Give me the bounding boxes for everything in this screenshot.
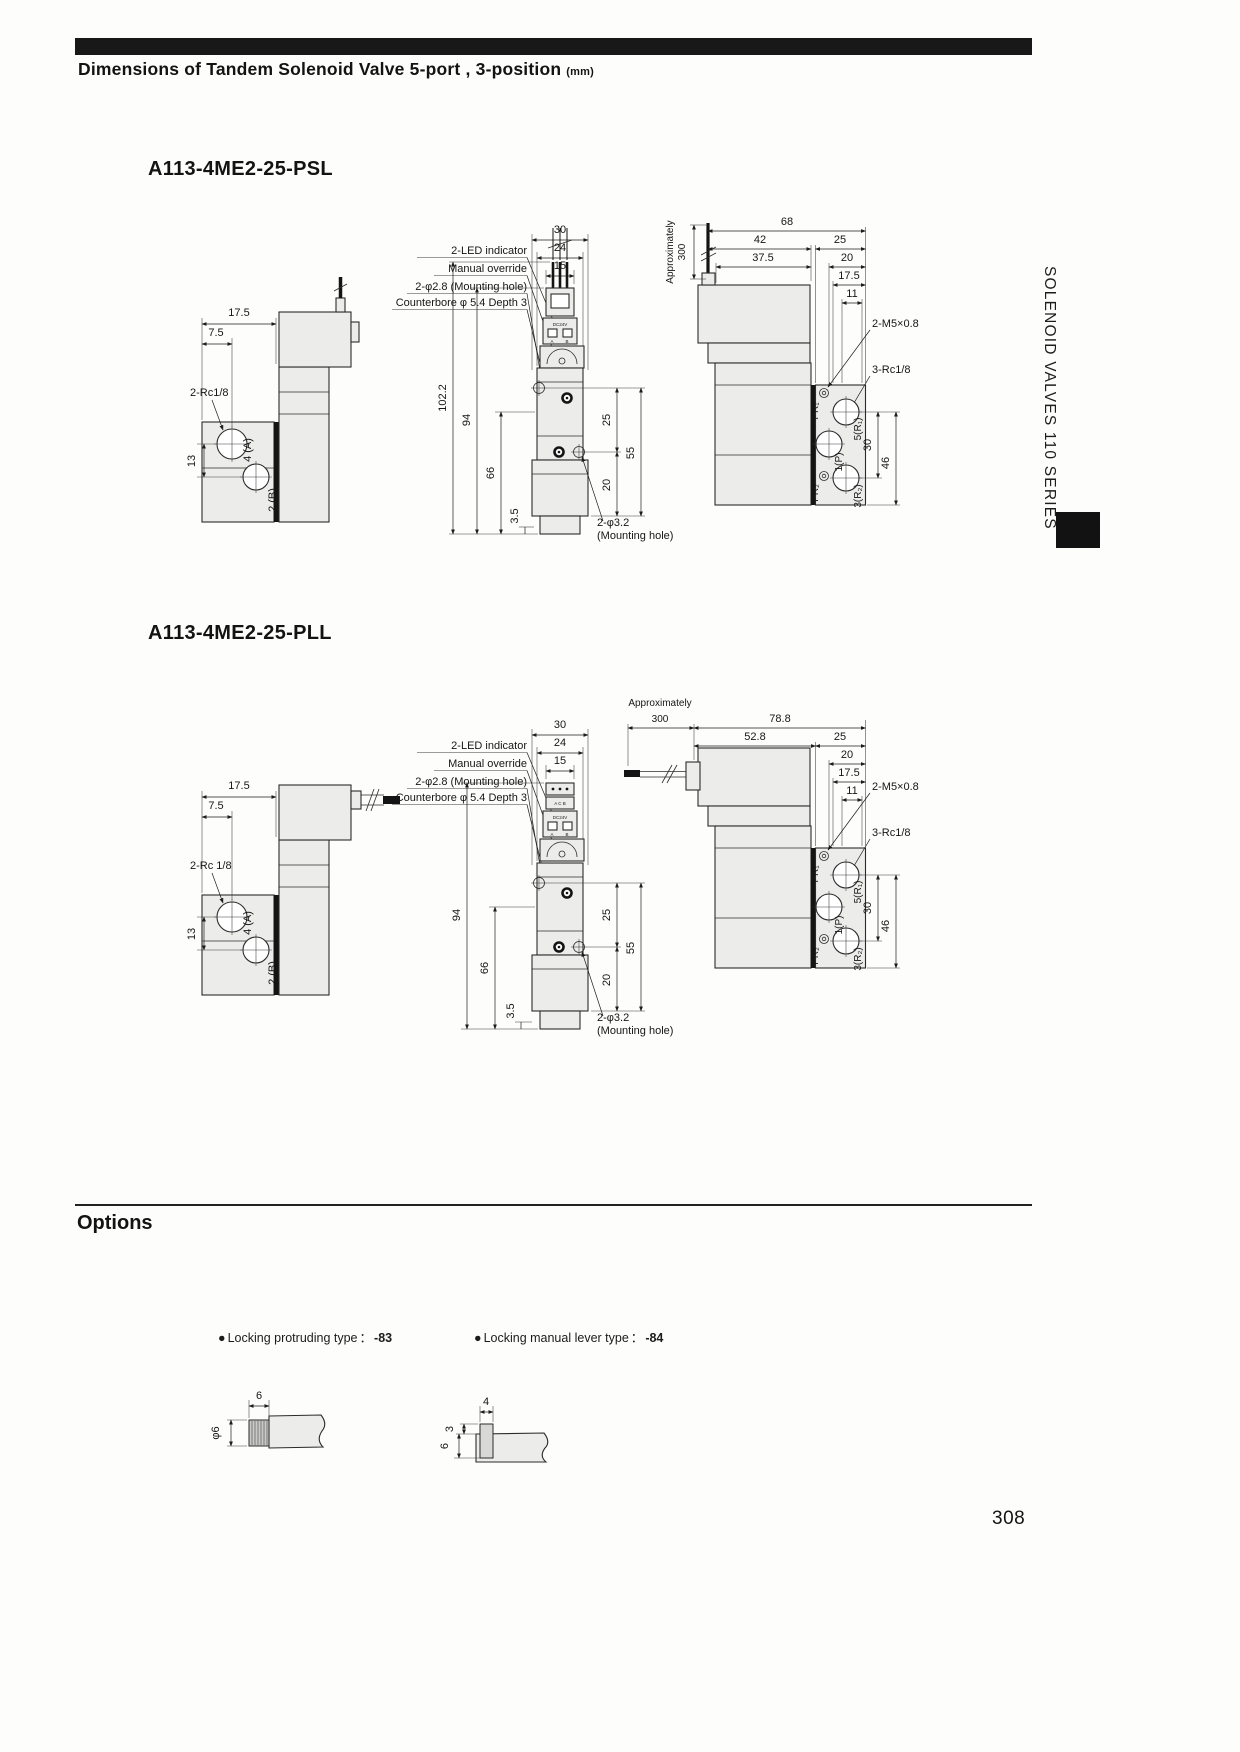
hole-size-label: 2-φ3.2 — [597, 1012, 629, 1024]
dim-17-5: 17.5 — [838, 767, 859, 779]
dim-label: 20 — [601, 479, 613, 491]
dim-approx-300: Approximately 300 — [628, 698, 694, 766]
approx-label: Approximately — [665, 220, 676, 283]
dim-label: 6 — [256, 1390, 262, 1402]
port-5r1-label: 5(R₁) — [853, 418, 864, 441]
dim-label: 17.5 — [228, 307, 249, 319]
dim-height-94: 94 — [451, 783, 544, 1029]
dim-46: 46 — [880, 920, 892, 932]
valve-front-outline: DC24V A B — [532, 228, 588, 534]
override-callout: Manual override — [448, 758, 527, 770]
dim-20: 20 — [841, 252, 853, 264]
face-label: A C B — [554, 801, 566, 806]
hole-note-label: (Mounting hole) — [597, 1025, 673, 1037]
option-separator: ： — [360, 1327, 373, 1346]
dim-11: 11 — [846, 288, 857, 300]
port-pr2-label: PR₂ — [810, 484, 821, 502]
dim-label: 7.5 — [208, 800, 223, 812]
port-pr1-label: PR₁ — [810, 865, 821, 883]
option-locking-lever: ● Locking manual lever type ： -84 — [474, 1327, 663, 1346]
dim-width-6: 6 — [249, 1390, 269, 1418]
dim-11: 11 — [846, 785, 857, 797]
port-5r1-label: 5(R₁) — [853, 881, 864, 904]
dim-label: 25 — [601, 414, 613, 426]
dim-30: 30 — [862, 902, 874, 914]
dim-label: 13 — [186, 455, 198, 467]
option-locking-protruding: ● Locking protruding type ： -83 — [218, 1327, 392, 1346]
option-lever-drawing: 4 3 6 — [428, 1388, 563, 1473]
dim-20: 20 — [841, 749, 853, 761]
series-side-label: SOLENOID VALVES 110 SERIES — [1040, 266, 1058, 530]
dim-17-5: 17.5 — [838, 270, 859, 282]
section-index-tab — [1056, 512, 1100, 548]
dim-label: 66 — [485, 467, 497, 479]
valve-body-cut — [269, 1415, 325, 1448]
valve-front-outline: A C B DC24V A B — [532, 783, 588, 1029]
bullet-icon: ● — [218, 1331, 226, 1345]
port-3r2-label: 3(R₂) — [853, 484, 864, 507]
dim-label: 3 — [444, 1426, 456, 1432]
led-callout: 2-LED indicator — [451, 740, 527, 752]
dim-label: 94 — [451, 909, 463, 921]
dim-68: 68 — [781, 216, 793, 228]
catalog-page: Dimensions of Tandem Solenoid Valve 5-po… — [0, 0, 1240, 1752]
thread-m5-callout: 2-M5×0.8 — [872, 318, 919, 330]
thread-m5-callout: 2-M5×0.8 — [872, 781, 919, 793]
dim-label: φ6 — [210, 1426, 222, 1439]
dim-30: 30 — [862, 439, 874, 451]
option-code: -83 — [374, 1331, 392, 1345]
dim-label: 15 — [554, 755, 566, 767]
thread-rc-callout: 3-Rc1/8 — [872, 827, 911, 839]
port-b-label: 2 (B) — [267, 488, 279, 512]
thread-callout: 2-Rc 1/8 — [190, 860, 232, 872]
terminal-a: A — [550, 832, 553, 837]
port-3r2-label: 3(R₂) — [853, 947, 864, 970]
dim-height-3-5: 3.5 — [509, 508, 534, 534]
dim-dia-6: φ6 — [210, 1420, 247, 1446]
bullet-icon: ● — [474, 1331, 482, 1345]
dim-offset-7-5: 7.5 — [202, 800, 232, 900]
port-a-label: 4 (A) — [242, 438, 254, 462]
dim-height-3: 3 — [444, 1424, 478, 1434]
dim-label: 20 — [601, 974, 613, 986]
connector-voltage: DC24V — [553, 815, 568, 820]
mount-hole-callout: 2-φ2.8 (Mounting hole) — [415, 281, 527, 293]
port-pr2-label: PR₂ — [810, 947, 821, 965]
page-title-unit: (mm) — [566, 66, 594, 78]
thread-rc-callout: 3-Rc1/8 — [872, 364, 911, 376]
approx-label: Approximately — [628, 698, 691, 709]
mount-hole-callout: 2-φ2.8 (Mounting hole) — [415, 776, 527, 788]
dim-height-3-5: 3.5 — [505, 1003, 532, 1029]
dim-approx-300: Approximately 300 — [665, 220, 706, 283]
page-title-text: Dimensions of Tandem Solenoid Valve 5-po… — [78, 59, 561, 79]
dim-78-8: 78.8 — [769, 713, 790, 725]
dim-25: 25 — [834, 234, 846, 246]
dim-label: 13 — [186, 928, 198, 940]
approx-value: 300 — [652, 714, 669, 725]
header-bar — [75, 38, 1032, 55]
thread-callout: 2-Rc1/8 — [190, 387, 229, 399]
leader-callouts: 2-LED indicator Manual override 2-φ2.8 (… — [392, 245, 556, 388]
dim-width-4: 4 — [480, 1396, 493, 1422]
port-1p-label: 1(P) — [834, 453, 845, 472]
dim-25: 25 — [834, 731, 846, 743]
hole-note-label: (Mounting hole) — [597, 530, 673, 542]
dim-label: 3.5 — [509, 508, 521, 523]
dim-label: 30 — [554, 719, 566, 731]
dim-52-8: 52.8 — [744, 731, 765, 743]
counterbore-callout: Counterbore φ 5.4 Depth 3 — [396, 297, 527, 309]
dim-offset-7-5: 7.5 — [202, 327, 232, 427]
leader-callouts: 2-LED indicator Manual override 2-φ2.8 (… — [392, 740, 556, 883]
manual-lever — [480, 1424, 493, 1458]
dim-screw-20: 20 — [601, 947, 617, 1011]
dim-label: 3.5 — [505, 1003, 517, 1018]
valve-side-outline — [202, 277, 359, 522]
dim-label: 6 — [439, 1443, 451, 1449]
connector-voltage: DC24V — [553, 322, 568, 327]
page-number: 308 — [992, 1508, 1025, 1530]
dim-37-5: 37.5 — [752, 252, 773, 264]
dim-width-15: 15 — [546, 755, 574, 779]
dim-height-6: 6 — [439, 1434, 480, 1458]
option-label: Locking protruding type — [228, 1331, 358, 1345]
options-heading: Options — [77, 1212, 153, 1235]
port-1p-label: 1(P) — [834, 916, 845, 935]
approx-value: 300 — [677, 243, 688, 260]
terminal-b: B — [565, 832, 568, 837]
psl-right-view: Approximately 300 68 42 25 37.5 20 17.5 — [620, 215, 954, 519]
page-title: Dimensions of Tandem Solenoid Valve 5-po… — [78, 59, 594, 80]
options-divider — [75, 1204, 1032, 1206]
dim-screw-20: 20 — [601, 452, 617, 516]
option-code: -84 — [645, 1331, 663, 1345]
option-label: Locking manual lever type — [484, 1331, 629, 1345]
dim-label: 94 — [461, 414, 473, 426]
valve-side-outline — [624, 748, 866, 968]
dim-label: 17.5 — [228, 780, 249, 792]
terminal-a: A — [550, 339, 553, 344]
port-a-label: 4 (A) — [242, 911, 254, 935]
dim-label: 4 — [483, 1396, 489, 1408]
dim-46: 46 — [880, 457, 892, 469]
terminal-b: B — [565, 339, 568, 344]
port-pr1-label: PR₁ — [810, 402, 821, 420]
option-separator: ： — [631, 1327, 644, 1346]
protruding-knob — [249, 1420, 269, 1446]
pll-right-view: Approximately 300 78.8 52.8 25 20 17.5 1… — [620, 678, 954, 982]
dim-label: 102.2 — [437, 384, 449, 412]
dim-label: 25 — [601, 909, 613, 921]
model-title-pll: A113-4ME2-25-PLL — [148, 622, 332, 645]
model-title-psl: A113-4ME2-25-PSL — [148, 158, 333, 181]
led-callout: 2-LED indicator — [451, 245, 527, 257]
dim-label: 7.5 — [208, 327, 223, 339]
dim-label: 66 — [479, 962, 491, 974]
dim-42: 42 — [754, 234, 766, 246]
override-callout: Manual override — [448, 263, 527, 275]
port-b-label: 2 (B) — [267, 961, 279, 985]
option-protruding-drawing: 6 φ6 — [205, 1388, 340, 1473]
counterbore-callout: Counterbore φ 5.4 Depth 3 — [396, 792, 527, 804]
dim-label: 24 — [554, 737, 566, 749]
